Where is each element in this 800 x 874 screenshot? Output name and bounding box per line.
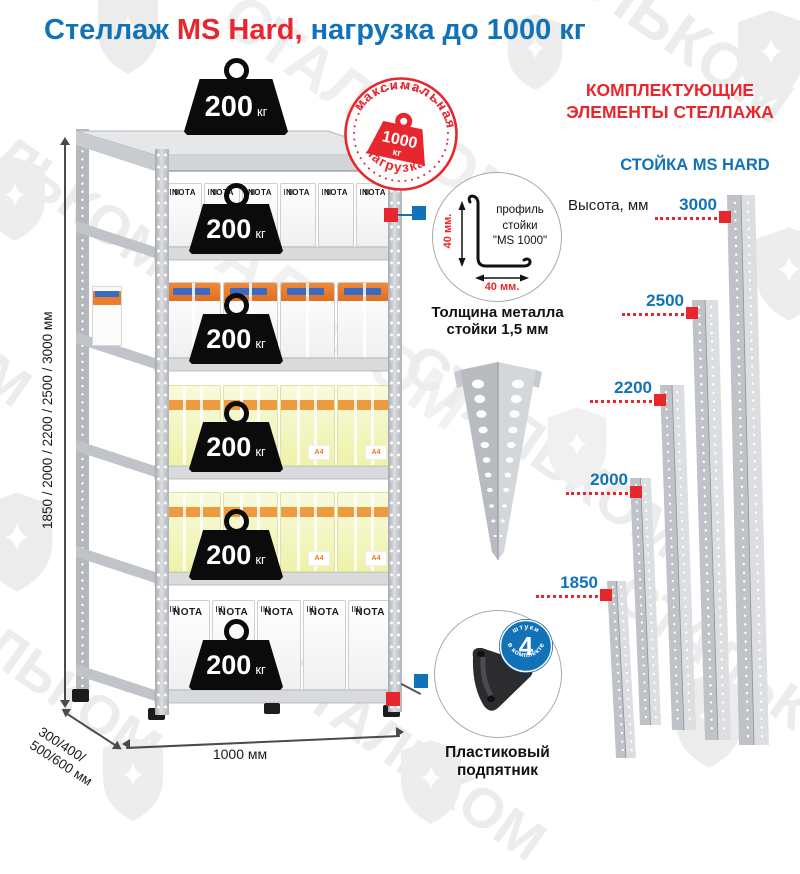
- profile-dim-horizontal: 40 мм.: [472, 281, 532, 293]
- weight-200kg: 200кг: [184, 58, 288, 135]
- rack-front-left-post: [155, 149, 169, 715]
- weight-200kg: 200кг: [189, 183, 283, 254]
- paper-bundle: A4: [280, 492, 335, 572]
- box-brand-label: NOTA: [355, 607, 385, 618]
- leader-marker: [654, 394, 666, 406]
- leader-dots: [622, 313, 684, 316]
- paper-box: NOTA: [348, 600, 392, 690]
- leader-marker: [630, 486, 642, 498]
- leader-dots: [536, 595, 598, 598]
- weight-200kg: 200кг: [189, 293, 283, 364]
- box-strap: [297, 386, 300, 465]
- paper-bundle: A4: [337, 492, 392, 572]
- leader-marker: [600, 589, 612, 601]
- weight-unit: кг: [255, 444, 265, 459]
- weight-value: 200: [206, 214, 251, 245]
- box-brand-label: NOTA: [286, 188, 310, 197]
- leader-marker: [719, 211, 731, 223]
- weight-value: 200: [206, 324, 251, 355]
- weight-200kg: 200кг: [189, 509, 283, 580]
- shield-logo-icon: [100, 735, 166, 823]
- box-brand-label: NOTA: [310, 607, 340, 618]
- marker-red-square-bottom: [386, 692, 400, 706]
- bundle-stripe: [281, 400, 334, 410]
- height-options-label: 1850 / 2000 / 2200 / 2500 / 3000 мм: [40, 140, 55, 700]
- height-dimension-line: [64, 142, 66, 702]
- a4-label: A4: [308, 551, 330, 566]
- paper-box: NOTA: [280, 183, 316, 247]
- profile-caption-1: профиль: [483, 203, 557, 219]
- bundle-stripe: [338, 400, 391, 410]
- box-strap: [306, 283, 309, 357]
- plastic-foot-caption: Пластиковый подпятник: [415, 744, 580, 780]
- paper-box-orange-lid: [337, 282, 392, 358]
- marker-blue-square-bottom: [414, 674, 428, 688]
- weight-200kg: 200кг: [189, 401, 283, 472]
- thickness-caption: Толщина металла стойки 1,5 мм: [415, 304, 580, 338]
- box-brand-label: NOTA: [264, 607, 294, 618]
- rack-front-right-post: [388, 149, 402, 712]
- page-title: Стеллаж MS Hard, нагрузка до 1000 кг: [44, 14, 586, 47]
- box-strap: [354, 493, 357, 571]
- stand-height-2000: 2000: [566, 470, 628, 490]
- height-units-label: Высота, мм: [568, 197, 648, 214]
- components-header-line1: КОМПЛЕКТУЮЩИЕ: [545, 80, 795, 101]
- box-brand-label: NOTA: [324, 188, 348, 197]
- box-brand-label: NOTA: [219, 607, 249, 618]
- paper-bundle: A4: [337, 385, 392, 466]
- stand-subheader: СТОЙКА MS HARD: [590, 156, 800, 175]
- marker-connector-top: [397, 214, 413, 216]
- weight-unit: кг: [257, 104, 267, 119]
- weight-value: 200: [206, 432, 251, 463]
- paper-box-orange-lid: [280, 282, 335, 358]
- bundle-stripe: [281, 507, 334, 517]
- profile-detail-circle: 40 мм. 40 мм. профиль стойки "MS 1000": [432, 172, 562, 302]
- weight-unit: кг: [255, 662, 265, 677]
- leader-marker: [686, 307, 698, 319]
- arrowhead-width-start-icon: [122, 739, 130, 749]
- weight-unit: кг: [255, 552, 265, 567]
- max-load-stamp: максимальная нагрузка 1000 кг: [330, 63, 472, 205]
- profile-caption-3: "MS 1000": [483, 234, 557, 250]
- title-part-3: нагрузка до 1000 кг: [303, 14, 586, 46]
- weight-value: 200: [206, 540, 251, 571]
- profile-dim-vertical: 40 мм.: [442, 203, 454, 259]
- count-badge: штуки в комплекте 4: [498, 618, 554, 674]
- thickness-line-1: Толщина металла: [415, 304, 580, 321]
- leader-dots: [566, 492, 628, 495]
- box-strap: [354, 386, 357, 465]
- stand-height-2500: 2500: [622, 291, 684, 311]
- weight-value: 200: [206, 650, 251, 681]
- title-part-2: MS Hard,: [177, 14, 303, 46]
- arrowhead-width-end-icon: [396, 727, 404, 737]
- title-part-1: Стеллаж: [44, 14, 177, 46]
- leader-dots: [655, 217, 717, 220]
- box-strap: [363, 283, 366, 357]
- box-strap: [297, 493, 300, 571]
- corner-post-3d: [448, 356, 548, 568]
- paper-bundle: A4: [280, 385, 335, 466]
- stand-height-2200: 2200: [590, 378, 652, 398]
- bundle-stripe: [338, 507, 391, 517]
- a4-label: A4: [365, 551, 387, 566]
- box-strap: [183, 493, 186, 571]
- stand-height-1850: 1850: [536, 573, 598, 593]
- weight-200kg: 200кг: [189, 619, 283, 690]
- badge-count: 4: [519, 631, 534, 661]
- weight-unit: кг: [255, 336, 265, 351]
- leader-dots: [590, 400, 652, 403]
- arrowhead-up-icon: [60, 137, 70, 145]
- foot-caption-1: Пластиковый: [415, 744, 580, 762]
- foot-caption-2: подпятник: [415, 762, 580, 780]
- box-strap: [183, 386, 186, 465]
- marker-red-square-top: [384, 208, 398, 222]
- width-label: 1000 мм: [200, 746, 280, 762]
- components-header-line2: ЭЛЕМЕНТЫ СТЕЛЛАЖА: [545, 102, 795, 123]
- box-brand-label: NOTA: [173, 607, 203, 618]
- profile-caption: профиль стойки "MS 1000": [483, 203, 557, 250]
- side-box: [92, 286, 122, 346]
- thickness-line-2: стойки 1,5 мм: [415, 321, 580, 338]
- stand-height-3000: 3000: [655, 195, 717, 215]
- paper-box: NOTA: [318, 183, 354, 247]
- paper-box: NOTA: [303, 600, 347, 690]
- weight-unit: кг: [255, 226, 265, 241]
- marker-blue-square-top: [412, 206, 426, 220]
- a4-label: A4: [308, 445, 330, 460]
- a4-label: A4: [365, 445, 387, 460]
- profile-caption-2: стойки: [483, 219, 557, 235]
- weight-value: 200: [205, 91, 253, 124]
